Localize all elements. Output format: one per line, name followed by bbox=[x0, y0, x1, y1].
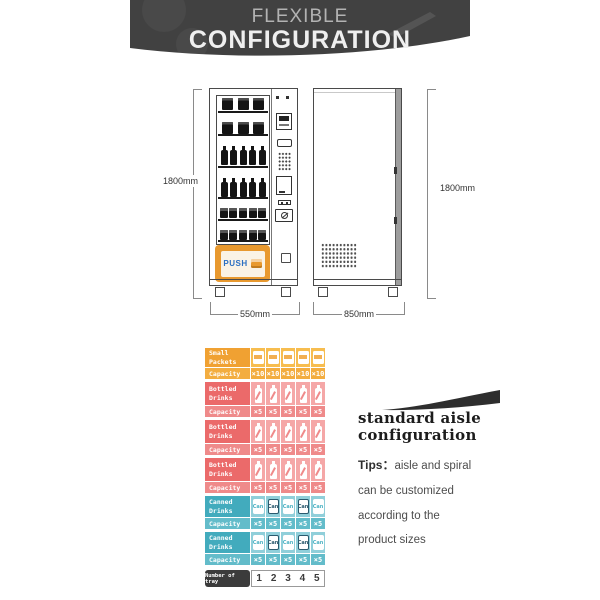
product-box-icon bbox=[253, 98, 264, 110]
capacity-values: ×5×5×5×5×5 bbox=[251, 482, 325, 493]
push-door-panel: PUSH bbox=[221, 251, 265, 277]
product-bottle-icon bbox=[240, 182, 247, 197]
front-panel-divider bbox=[271, 89, 272, 285]
bottle-icon bbox=[300, 388, 307, 403]
shelf-row bbox=[218, 98, 268, 113]
side-height-dimension-line bbox=[427, 89, 428, 299]
product-can-icon bbox=[258, 230, 266, 240]
packet-icon bbox=[253, 351, 264, 364]
capacity-value: ×5 bbox=[296, 518, 310, 529]
product-bottle-icon bbox=[221, 150, 228, 165]
aisle-icons: CanCanCanCanCan bbox=[251, 532, 325, 553]
capacity-values: ×5×5×5×5×5 bbox=[251, 518, 325, 529]
door-hinge-strip bbox=[395, 89, 401, 285]
capacity-label: Capacity bbox=[205, 368, 250, 379]
capacity-value: ×5 bbox=[311, 554, 325, 565]
front-window bbox=[216, 95, 270, 245]
bottle-icon bbox=[270, 464, 277, 479]
bottle-icon bbox=[270, 388, 277, 403]
aisle-icons bbox=[251, 382, 325, 405]
push-hand-icon bbox=[251, 259, 262, 268]
aisle-cell: Can bbox=[251, 532, 265, 553]
can-icon: Can bbox=[298, 535, 309, 550]
coin-return-icon bbox=[275, 209, 293, 222]
side-top-edge bbox=[314, 92, 396, 93]
aisle-type-label: Small Packets bbox=[205, 348, 250, 367]
banner: FLEXIBLE CONFIGURATION bbox=[130, 0, 470, 62]
aisle-type-label: Canned Drinks bbox=[205, 496, 250, 517]
aisle-cell: Can bbox=[281, 496, 295, 517]
aisle-cell bbox=[251, 348, 265, 367]
can-icon: Can bbox=[313, 535, 324, 550]
bottle-icon bbox=[315, 464, 322, 479]
capacity-value: ×5 bbox=[296, 406, 310, 417]
config-row-labels: Small PacketsCapacity bbox=[205, 348, 250, 379]
config-row-labels: Canned DrinksCapacity bbox=[205, 532, 250, 565]
aisle-cell bbox=[311, 458, 325, 481]
side-right-foot bbox=[388, 287, 398, 297]
can-icon: Can bbox=[268, 535, 279, 550]
shelf-row bbox=[218, 145, 268, 168]
product-box-icon bbox=[238, 98, 249, 110]
panel-dots-icon bbox=[276, 96, 296, 99]
capacity-value: ×5 bbox=[281, 444, 295, 455]
capacity-value: ×5 bbox=[311, 482, 325, 493]
push-label: PUSH bbox=[223, 259, 247, 268]
capacity-value: ×5 bbox=[266, 482, 280, 493]
aisle-cell bbox=[296, 458, 310, 481]
swoosh-icon bbox=[382, 390, 502, 412]
tips-body: aisle and spiral can be customized accor… bbox=[358, 460, 471, 546]
aisle-cell bbox=[281, 420, 295, 443]
product-box-icon bbox=[253, 122, 264, 134]
capacity-value: ×5 bbox=[296, 444, 310, 455]
capacity-value: ×5 bbox=[311, 406, 325, 417]
aisle-cell: Can bbox=[311, 532, 325, 553]
config-row-items: CanCanCanCanCan×5×5×5×5×5 bbox=[251, 532, 325, 565]
bottle-icon bbox=[255, 426, 262, 441]
packet-icon bbox=[268, 351, 279, 364]
bottle-icon bbox=[315, 388, 322, 403]
product-bottle-icon bbox=[240, 150, 247, 165]
capacity-values: ×5×5×5×5×5 bbox=[251, 444, 325, 455]
tips-text: Tips：aisle and spiral can be customized … bbox=[358, 453, 508, 553]
front-width-dimension-label: 550mm bbox=[238, 308, 272, 320]
capacity-value: ×5 bbox=[251, 554, 265, 565]
aside-heading: standard aisle configuration bbox=[358, 410, 508, 443]
aisle-cell bbox=[281, 348, 295, 367]
side-width-dimension: 850mm bbox=[313, 302, 405, 315]
config-row-items: ×5×5×5×5×5 bbox=[251, 458, 325, 493]
front-base-line bbox=[210, 279, 297, 280]
config-row-items: CanCanCanCanCan×5×5×5×5×5 bbox=[251, 496, 325, 529]
capacity-value: ×5 bbox=[281, 482, 295, 493]
config-row: Bottled DrinksCapacity×5×5×5×5×5 bbox=[205, 420, 325, 455]
aisle-cell bbox=[281, 458, 295, 481]
page: FLEXIBLE CONFIGURATION 1800mm 1800mm PUS… bbox=[0, 0, 600, 600]
product-bottle-icon bbox=[221, 182, 228, 197]
front-left-foot bbox=[215, 287, 225, 297]
capacity-label: Capacity bbox=[205, 406, 250, 417]
capacity-value: ×5 bbox=[311, 444, 325, 455]
aisle-cell bbox=[296, 348, 310, 367]
product-can-icon bbox=[249, 230, 257, 240]
vent-grid-icon bbox=[321, 243, 357, 269]
shelf-row bbox=[218, 208, 268, 221]
can-icon: Can bbox=[268, 499, 279, 514]
config-row: Bottled DrinksCapacity×5×5×5×5×5 bbox=[205, 382, 325, 417]
product-bottle-icon bbox=[230, 150, 237, 165]
tray-number: 1 bbox=[252, 571, 266, 586]
can-icon: Can bbox=[313, 499, 324, 514]
aisle-cell: Can bbox=[296, 496, 310, 517]
config-row: Canned DrinksCapacityCanCanCanCanCan×5×5… bbox=[205, 496, 325, 529]
can-icon: Can bbox=[253, 499, 264, 514]
front-width-dimension: 550mm bbox=[210, 302, 300, 315]
can-icon: Can bbox=[283, 499, 294, 514]
front-right-foot bbox=[281, 287, 291, 297]
aisle-cell bbox=[311, 348, 325, 367]
capacity-value: ×5 bbox=[281, 406, 295, 417]
side-base-line bbox=[314, 279, 401, 280]
config-row: Small PacketsCapacity×10×10×10×10×10 bbox=[205, 348, 325, 379]
capacity-value: ×10 bbox=[266, 368, 280, 379]
tips-label: Tips： bbox=[358, 458, 394, 472]
capacity-label: Capacity bbox=[205, 518, 250, 529]
product-bottle-icon bbox=[230, 182, 237, 197]
banner-title-line1: FLEXIBLE bbox=[130, 6, 470, 28]
capacity-value: ×10 bbox=[296, 368, 310, 379]
hinge-mark-icon bbox=[394, 217, 397, 224]
aisle-cell bbox=[251, 458, 265, 481]
tray-number: 2 bbox=[266, 571, 280, 586]
config-row-labels: Bottled DrinksCapacity bbox=[205, 458, 250, 493]
capacity-value: ×5 bbox=[266, 406, 280, 417]
lock-icon bbox=[281, 253, 291, 263]
packet-icon bbox=[283, 351, 294, 364]
shelf-row bbox=[218, 230, 268, 243]
aisle-type-label: Bottled Drinks bbox=[205, 458, 250, 481]
aisle-icons bbox=[251, 420, 325, 443]
front-height-dimension-label: 1800mm bbox=[161, 175, 200, 187]
product-box-icon bbox=[238, 122, 249, 134]
bottle-icon bbox=[285, 464, 292, 479]
capacity-value: ×5 bbox=[281, 554, 295, 565]
product-box-icon bbox=[222, 122, 233, 134]
product-can-icon bbox=[229, 208, 237, 218]
product-can-icon bbox=[258, 208, 266, 218]
shelf-row bbox=[218, 177, 268, 200]
tray-numbers: 12345 bbox=[251, 570, 325, 587]
config-row-items: ×10×10×10×10×10 bbox=[251, 348, 325, 379]
tray-number: 4 bbox=[295, 571, 309, 586]
aisle-cell bbox=[296, 382, 310, 405]
aisle-icons bbox=[251, 458, 325, 481]
capacity-value: ×5 bbox=[251, 518, 265, 529]
capacity-value: ×10 bbox=[311, 368, 325, 379]
product-can-icon bbox=[239, 230, 247, 240]
config-row: Bottled DrinksCapacity×5×5×5×5×5 bbox=[205, 458, 325, 493]
aisle-cell: Can bbox=[296, 532, 310, 553]
config-row-labels: Bottled DrinksCapacity bbox=[205, 420, 250, 455]
aisle-cell bbox=[266, 382, 280, 405]
aisle-cell: Can bbox=[281, 532, 295, 553]
aisle-cell bbox=[296, 420, 310, 443]
capacity-label: Capacity bbox=[205, 444, 250, 455]
tray-number: 3 bbox=[281, 571, 295, 586]
config-row-labels: Bottled DrinksCapacity bbox=[205, 382, 250, 417]
packet-icon bbox=[313, 351, 324, 364]
product-can-icon bbox=[220, 208, 228, 218]
aside-note: standard aisle configuration Tips：aisle … bbox=[358, 390, 508, 553]
side-height-dimension-label: 1800mm bbox=[438, 182, 477, 194]
aisle-cell: Can bbox=[266, 532, 280, 553]
can-icon: Can bbox=[283, 535, 294, 550]
product-can-icon bbox=[229, 230, 237, 240]
aisle-cell bbox=[311, 420, 325, 443]
capacity-value: ×5 bbox=[296, 482, 310, 493]
bottle-icon bbox=[285, 426, 292, 441]
bottle-icon bbox=[270, 426, 277, 441]
capacity-values: ×5×5×5×5×5 bbox=[251, 554, 325, 565]
capacity-label: Capacity bbox=[205, 554, 250, 565]
aisle-type-label: Canned Drinks bbox=[205, 532, 250, 553]
packet-icon bbox=[298, 351, 309, 364]
hinge-mark-icon bbox=[394, 167, 397, 174]
front-height-dimension-line bbox=[193, 89, 194, 299]
bottle-icon bbox=[315, 426, 322, 441]
config-table: Small PacketsCapacity×10×10×10×10×10Bott… bbox=[205, 348, 325, 587]
front-view: PUSH bbox=[209, 88, 298, 286]
side-view bbox=[313, 88, 402, 286]
bottle-icon bbox=[255, 388, 262, 403]
tray-number: 5 bbox=[310, 571, 324, 586]
config-row: Canned DrinksCapacityCanCanCanCanCan×5×5… bbox=[205, 532, 325, 565]
bottle-icon bbox=[300, 464, 307, 479]
tray-count-row: Number of tray 12345 bbox=[205, 570, 325, 587]
capacity-values: ×5×5×5×5×5 bbox=[251, 406, 325, 417]
capacity-value: ×5 bbox=[251, 444, 265, 455]
capacity-value: ×5 bbox=[281, 518, 295, 529]
capacity-value: ×10 bbox=[281, 368, 295, 379]
config-row-items: ×5×5×5×5×5 bbox=[251, 420, 325, 455]
capacity-values: ×10×10×10×10×10 bbox=[251, 368, 325, 379]
can-icon: Can bbox=[298, 499, 309, 514]
product-can-icon bbox=[249, 208, 257, 218]
aisle-cell bbox=[281, 382, 295, 405]
aisle-cell bbox=[251, 382, 265, 405]
config-row-labels: Canned DrinksCapacity bbox=[205, 496, 250, 529]
side-left-foot bbox=[318, 287, 328, 297]
bottle-icon bbox=[300, 426, 307, 441]
coin-slot-icon bbox=[277, 139, 292, 147]
aisle-cell: Can bbox=[251, 496, 265, 517]
keypad-icon bbox=[278, 152, 291, 171]
config-row-items: ×5×5×5×5×5 bbox=[251, 382, 325, 417]
can-icon: Can bbox=[253, 535, 264, 550]
capacity-value: ×5 bbox=[296, 554, 310, 565]
capacity-value: ×5 bbox=[266, 444, 280, 455]
aisle-cell: Can bbox=[266, 496, 280, 517]
aisle-cell: Can bbox=[311, 496, 325, 517]
aisle-cell bbox=[266, 458, 280, 481]
product-bottle-icon bbox=[249, 150, 256, 165]
aisle-cell bbox=[251, 420, 265, 443]
product-can-icon bbox=[220, 230, 228, 240]
shelf-row bbox=[218, 122, 268, 137]
product-can-icon bbox=[239, 208, 247, 218]
capacity-value: ×5 bbox=[251, 482, 265, 493]
bill-acceptor-icon bbox=[276, 113, 292, 130]
push-door: PUSH bbox=[215, 245, 270, 282]
aisle-cell bbox=[266, 348, 280, 367]
aisle-icons bbox=[251, 348, 325, 367]
bottle-icon bbox=[255, 464, 262, 479]
aisle-icons: CanCanCanCanCan bbox=[251, 496, 325, 517]
aisle-cell bbox=[311, 382, 325, 405]
product-bottle-icon bbox=[249, 182, 256, 197]
capacity-value: ×5 bbox=[266, 554, 280, 565]
capacity-label: Capacity bbox=[205, 482, 250, 493]
aisle-cell bbox=[266, 420, 280, 443]
banner-title-line2: CONFIGURATION bbox=[130, 26, 470, 55]
product-bottle-icon bbox=[259, 182, 266, 197]
aisle-type-label: Bottled Drinks bbox=[205, 382, 250, 405]
product-box-icon bbox=[222, 98, 233, 110]
card-reader-icon bbox=[276, 176, 292, 195]
capacity-value: ×5 bbox=[311, 518, 325, 529]
capacity-value: ×5 bbox=[266, 518, 280, 529]
product-bottle-icon bbox=[259, 150, 266, 165]
aisle-type-label: Bottled Drinks bbox=[205, 420, 250, 443]
receipt-slot-icon bbox=[278, 200, 291, 205]
bottle-icon bbox=[285, 388, 292, 403]
tray-count-label: Number of tray bbox=[205, 570, 250, 587]
capacity-value: ×5 bbox=[251, 406, 265, 417]
capacity-value: ×10 bbox=[251, 368, 265, 379]
side-width-dimension-label: 850mm bbox=[342, 308, 376, 320]
